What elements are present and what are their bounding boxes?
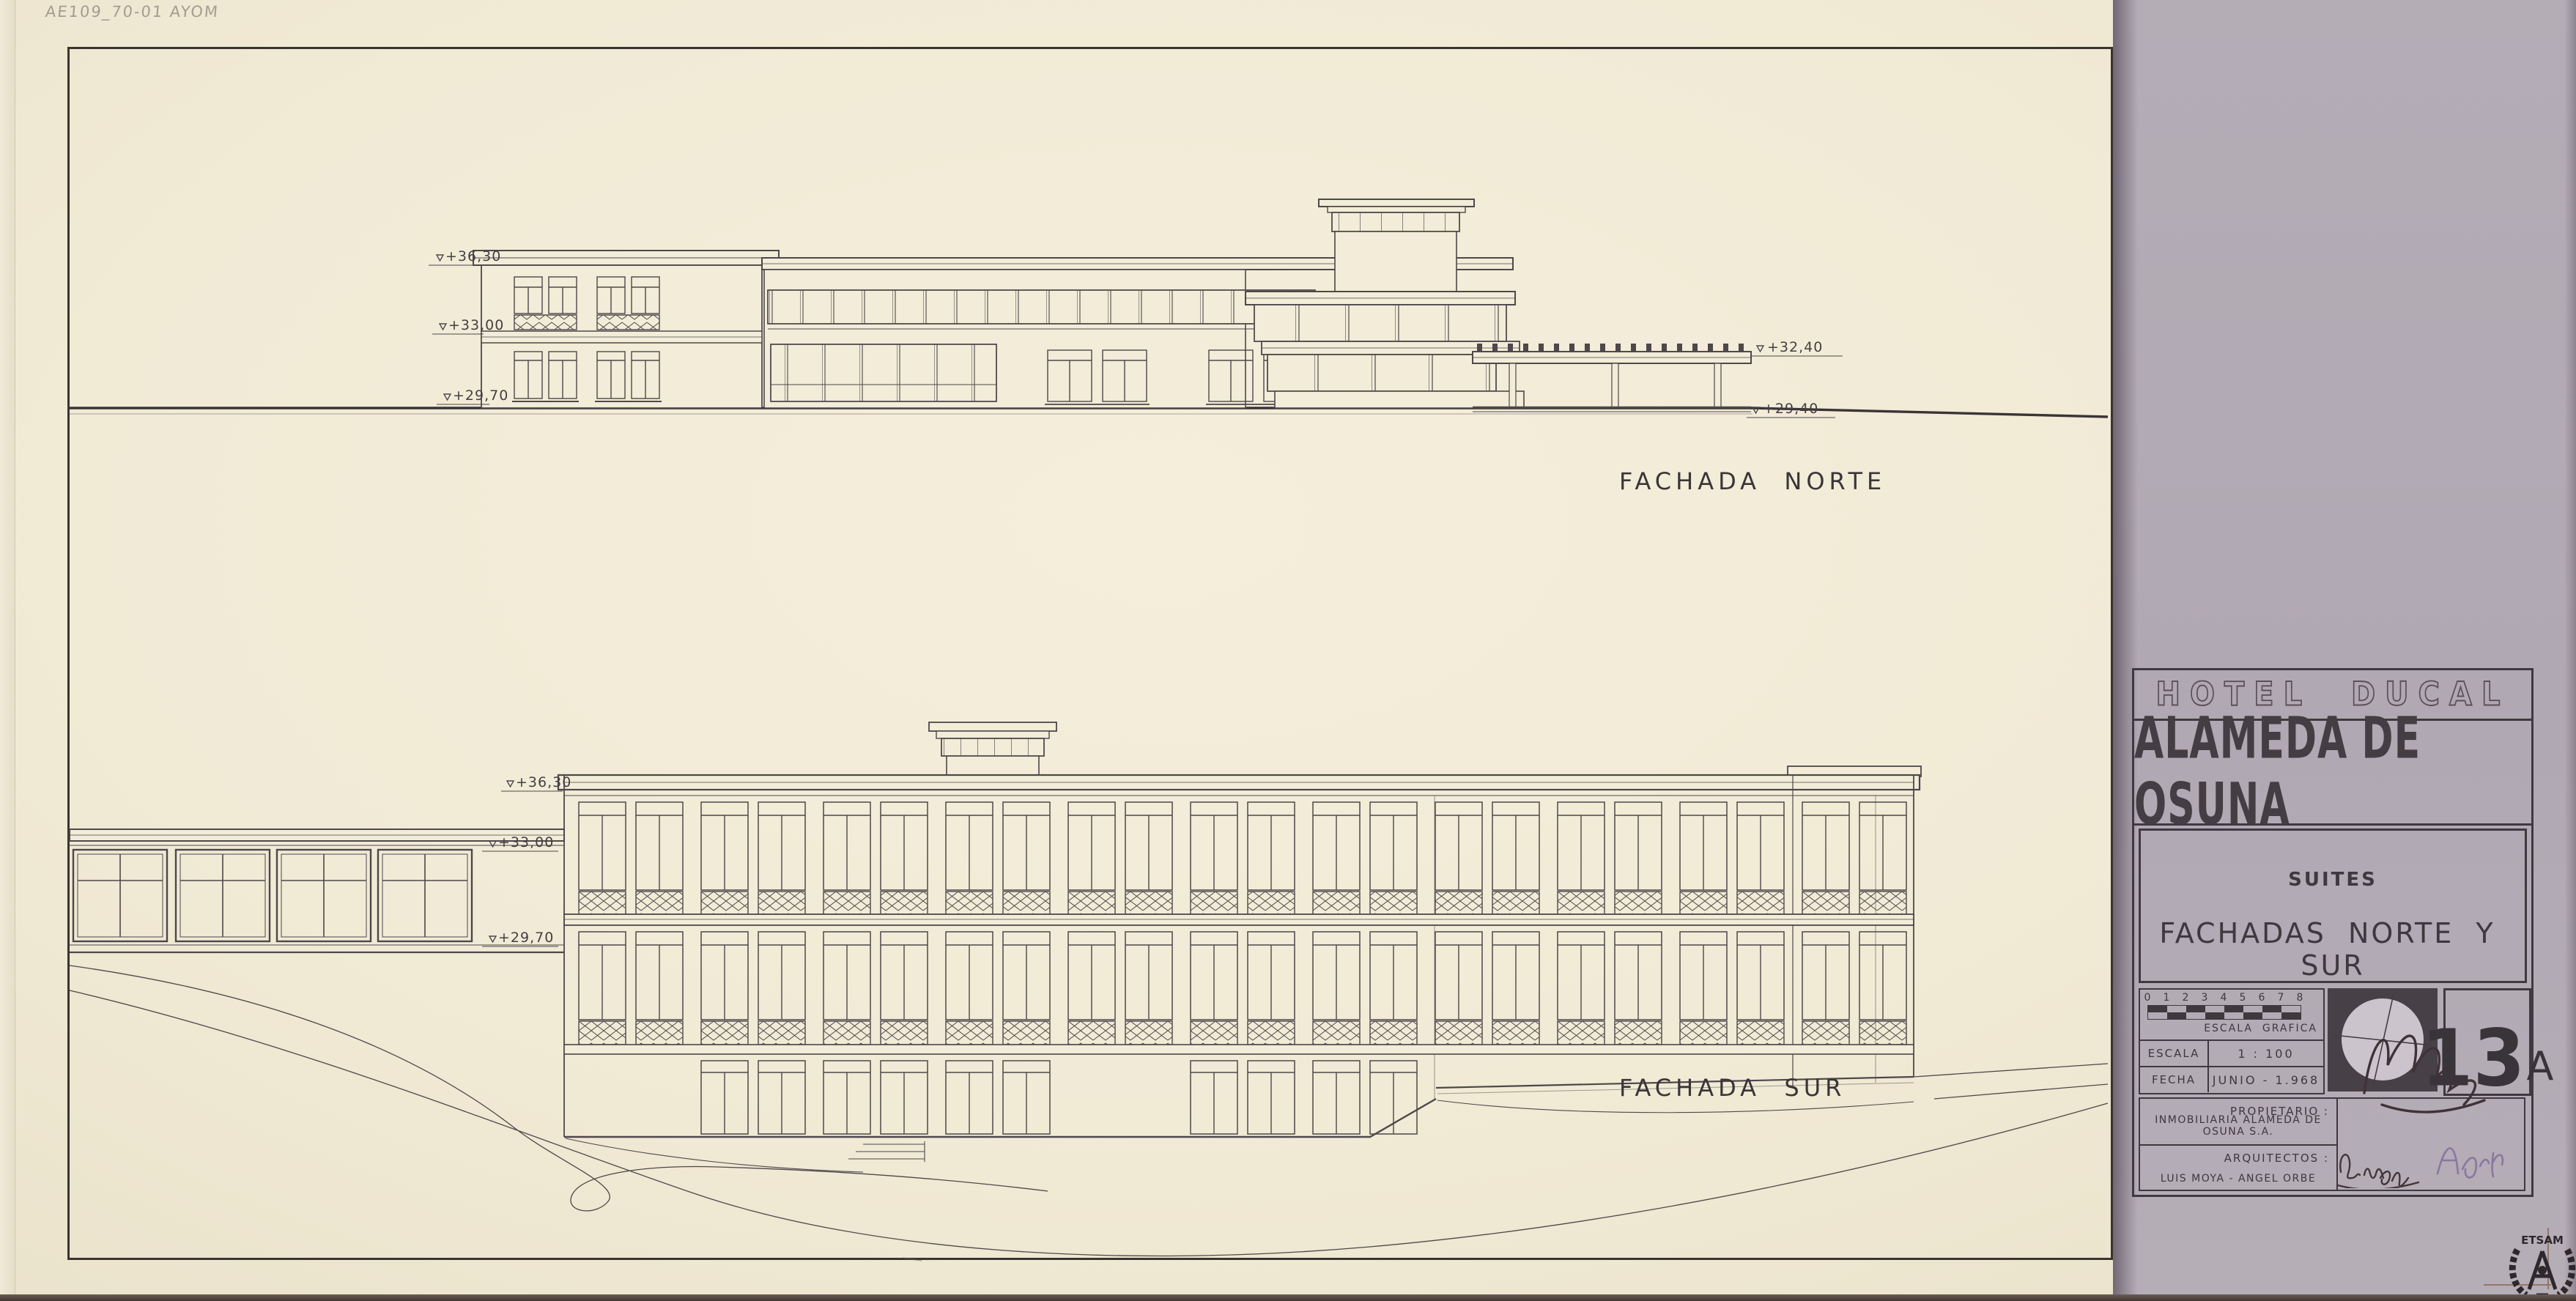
drawing-number-suffix: A <box>2527 1043 2554 1089</box>
elevation-value: +36,30 <box>445 248 501 264</box>
tick: 6 <box>2259 992 2265 1004</box>
title-row-sheet: SUITES FACHADAS NORTE Y SUR <box>2139 829 2527 983</box>
sheet-title: FACHADAS NORTE Y SUR <box>2141 917 2525 982</box>
architect-signature-orbe <box>2432 1131 2516 1185</box>
elevation-value: +33,00 <box>498 834 554 850</box>
date-field-value: JUNIO - 1.968 <box>2209 1073 2323 1087</box>
scale-field-value: 1 : 100 <box>2209 1047 2323 1061</box>
tick: 3 <box>2202 992 2208 1004</box>
tick: 2 <box>2183 992 2189 1004</box>
tick: 0 <box>2144 992 2151 1004</box>
owner-cell: PROPIETARIO : INMOBILIARIA ALAMEDA DE OS… <box>2140 1099 2336 1144</box>
elevation-value: +29,70 <box>498 930 554 946</box>
tick: 5 <box>2240 992 2246 1004</box>
scale-bar-caption: ESCALA GRAFICA <box>2204 1023 2317 1034</box>
architects-label: ARQUITECTOS : <box>2224 1152 2329 1165</box>
owner-value: INMOBILIARIA ALAMEDA DE OSUNA S.A. <box>2140 1114 2336 1138</box>
title-row-location: ALAMEDA DE OSUNA <box>2134 721 2531 826</box>
location-name: ALAMEDA DE OSUNA <box>2134 706 2531 838</box>
owner-signature <box>2350 1005 2503 1122</box>
drawing-sheet: AE109_70-01 AYOM <box>0 0 2576 1301</box>
scale-field-label: ESCALA <box>2140 1041 2209 1066</box>
elevation-value: +33,00 <box>448 317 504 333</box>
architect-signature-moya <box>2333 1141 2432 1188</box>
elevation-value: +29,40 <box>1763 401 1818 417</box>
elevation-mark-roof-north: +36,30 <box>429 248 501 265</box>
north-facade-label: FACHADA NORTE <box>1619 467 1886 495</box>
stamp-text: ETSAM <box>2521 1234 2564 1247</box>
owner-architects-box: PROPIETARIO : INMOBILIARIA ALAMEDA DE OS… <box>2139 1097 2525 1191</box>
elevation-mark-wing-base: +29,70 <box>482 930 558 946</box>
section-label: SUITES <box>2141 869 2525 891</box>
etsam-stamp: ETSAM <box>2507 1228 2576 1301</box>
tick: 7 <box>2278 992 2284 1004</box>
paper-edge-bottom <box>0 1294 2576 1301</box>
scale-table: ESCALA 1 : 100 FECHA JUNIO - 1.968 <box>2140 1039 2323 1092</box>
elevation-value: +29,70 <box>453 388 508 404</box>
south-facade-label: FACHADA SUR <box>1619 1074 1846 1102</box>
scale-box: 0 1 2 3 4 5 6 7 8 <box>2139 988 2325 1094</box>
architects-cell: ARQUITECTOS : LUIS MOYA - ANGEL ORBE <box>2140 1144 2336 1191</box>
title-block: HOTEL DUCAL ALAMEDA DE OSUNA SUITES FACH… <box>2132 668 2534 1197</box>
sheet-edge-shadow <box>2564 0 2576 1301</box>
elevation-mark-ground-north: +29,70 <box>437 388 508 404</box>
elevation-mark-roof-south: +36,30 <box>501 774 571 791</box>
tick: 1 <box>2164 992 2170 1004</box>
scale-bar-ticks: 0 1 2 3 4 5 6 7 8 <box>2147 992 2300 1004</box>
tick: 8 <box>2297 992 2303 1004</box>
tick: 4 <box>2221 992 2227 1004</box>
graphic-scale-bar <box>2147 1005 2301 1020</box>
architects-value: LUIS MOYA - ANGEL ORBE <box>2140 1173 2336 1185</box>
elevation-mark-pergola-roof: +32,40 <box>1751 339 1843 356</box>
elevation-value: +32,40 <box>1767 339 1823 355</box>
elevation-mark-floor-north: +33,00 <box>432 317 504 334</box>
elevation-value: +36,30 <box>516 774 571 790</box>
date-field-label: FECHA <box>2140 1067 2209 1092</box>
title-sheet: HOTEL DUCAL ALAMEDA DE OSUNA SUITES FACH… <box>2113 0 2576 1301</box>
